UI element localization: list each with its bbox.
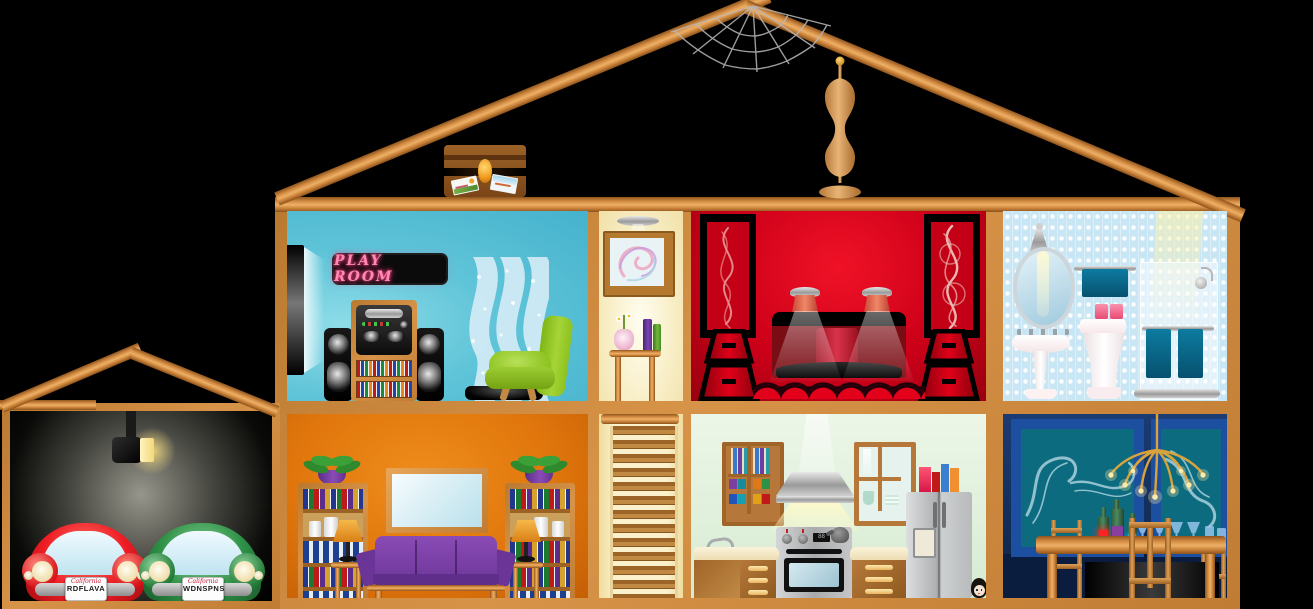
side-table-leg: [649, 357, 655, 401]
fridge-handle-left: [933, 502, 937, 528]
counter-top: [694, 547, 779, 560]
cereal-box: [932, 472, 940, 492]
chest-postcard-left: [451, 175, 480, 195]
chest-lock: [478, 159, 492, 183]
daisy: [616, 316, 622, 322]
sink-counter: [694, 538, 776, 598]
tissue-box: [1095, 304, 1108, 319]
colored-box: [762, 479, 770, 489]
chair-rail: [1129, 578, 1171, 584]
stove-oven: 88: [776, 527, 852, 598]
kettle: [831, 527, 849, 543]
swirl-panel-left: [700, 214, 756, 338]
knob-tick: [802, 529, 804, 533]
wall-screen: [386, 468, 488, 533]
lamp-table-leg: [513, 568, 518, 598]
table-leg: [1205, 554, 1215, 598]
cereal-box: [919, 467, 931, 492]
drawer-stack: [740, 560, 776, 598]
cereal-box: [950, 468, 959, 492]
red-car: California RDFLAVA: [26, 507, 144, 601]
lamp-shade: [333, 520, 363, 542]
stair-landing: [601, 414, 679, 424]
bathroom: [1003, 211, 1227, 401]
abstract-picture: [603, 231, 675, 297]
drawer-handle: [865, 577, 893, 582]
chair-post: [1165, 518, 1171, 598]
couch-leg: [490, 591, 497, 598]
doll-eye: [981, 589, 983, 591]
drawer-stack: [852, 560, 906, 598]
lamp-shade: [511, 520, 541, 542]
bath-towel-right: [1178, 329, 1203, 378]
drawer-counter: [852, 538, 906, 598]
colored-box: [753, 479, 761, 489]
car-foglight-right: [254, 571, 263, 580]
drinking-glass: [863, 491, 874, 505]
shower-base-bar: [1134, 389, 1220, 398]
window-mullion-h: [859, 477, 901, 481]
play-room: PLAY ROOM: [287, 211, 588, 401]
toilet-body: [1083, 333, 1125, 389]
refrigerator: [906, 492, 972, 598]
stacked-plates: [885, 495, 899, 505]
dining-chair-center: [1129, 518, 1171, 598]
doll-eye: [976, 589, 978, 591]
couch-leg: [375, 591, 382, 598]
white-jar: [552, 521, 564, 537]
license-plate: California WDNSPNS: [182, 577, 224, 601]
range-hood: [776, 472, 854, 496]
colored-box: [753, 494, 761, 504]
dress-form-mannequin: [800, 53, 880, 199]
lamp-table-leg: [335, 568, 340, 598]
stair-rungs: [610, 426, 678, 598]
swirl-panel-right: [924, 214, 980, 338]
armchair-front: [485, 367, 555, 389]
fridge-door-seam: [938, 492, 940, 598]
picture-swirl-art: [610, 238, 664, 286]
purple-couch: [363, 536, 509, 598]
white-jar: [309, 521, 321, 537]
upstairs-hallway: [599, 211, 683, 401]
license-plate: California RDFLAVA: [65, 577, 107, 601]
book-row: [510, 489, 570, 513]
postcard-sun: [469, 178, 475, 184]
stereo-dial: [400, 321, 408, 329]
drawer-handle: [865, 565, 893, 570]
range-hood-lip: [776, 496, 854, 503]
drawer-handle: [748, 566, 768, 571]
green-car: California WDNSPNS: [143, 507, 261, 601]
staircase: [599, 414, 683, 598]
potted-plant-right: [510, 456, 568, 484]
drawer-handle: [748, 590, 768, 595]
garage-interior: California RDFLAVA California WDNSPNS: [10, 411, 272, 601]
drawer-handle: [865, 589, 893, 594]
hand-towel: [1082, 269, 1128, 297]
couch-back: [375, 536, 497, 576]
couch-seam: [455, 540, 457, 574]
speaker-tower-left: [324, 328, 353, 401]
stereo-receiver: [356, 305, 412, 355]
living-room: [287, 414, 588, 598]
plate-number-text: RDFLAVA: [66, 585, 106, 593]
sconce-tip: [1036, 223, 1043, 230]
play-room-neon-sign: PLAY ROOM: [334, 255, 446, 283]
colored-box: [762, 494, 770, 504]
table-leg: [1047, 554, 1057, 598]
side-table-top: [609, 350, 661, 357]
stereo-knob-left: [363, 331, 381, 342]
standing-book-green: [653, 324, 661, 352]
neon-sign-text: PLAY ROOM: [334, 253, 446, 285]
treasure-chest: [444, 145, 526, 197]
speaker-cone: [419, 334, 440, 355]
tissue-box: [1110, 304, 1123, 319]
dollhouse-scene: PLAY ROOM: [0, 0, 1313, 609]
wall-cabinet: [722, 442, 784, 526]
bath-towel-left: [1146, 329, 1171, 378]
media-shelf-top: [356, 360, 412, 377]
couch-seam: [415, 540, 417, 574]
toilet-base: [1087, 387, 1121, 399]
potted-plant-left: [303, 456, 361, 484]
colored-box: [738, 479, 746, 489]
standing-book-purple: [643, 319, 652, 352]
speaker-cone: [327, 362, 350, 392]
attic-floor-beam: [275, 197, 1240, 212]
garage-light-head: [112, 437, 142, 463]
car-foglight-left: [24, 571, 33, 580]
stereo-knob-right: [387, 331, 405, 342]
lamp-table-leg: [534, 568, 539, 598]
colored-box: [729, 494, 737, 504]
chest-postcard-right: [490, 174, 518, 194]
plate-number-text: WDNSPNS: [183, 585, 223, 593]
kitchen: 88: [691, 414, 986, 598]
couch-seat: [373, 574, 499, 585]
cereal-box: [941, 464, 949, 492]
cabinet-door: [694, 560, 740, 598]
pink-vase: [614, 329, 634, 351]
couch-rail: [367, 585, 505, 591]
oven-door: [784, 558, 844, 592]
flat-panel-tv: [287, 245, 304, 375]
tv-glare: [304, 247, 324, 373]
colored-box: [729, 479, 737, 489]
stereo-cabinet: [351, 300, 417, 401]
screen-glass: [392, 474, 482, 527]
stove-knob: [798, 534, 808, 544]
daisy: [626, 313, 632, 319]
colored-box: [738, 494, 746, 504]
dining-room: [1003, 414, 1227, 598]
side-table-leg: [615, 357, 621, 401]
chair-rail: [1051, 528, 1082, 533]
counter-top: [850, 547, 908, 560]
pedestal-sink-bowl: [1012, 335, 1070, 353]
oven-glass: [789, 563, 839, 587]
red-media-room: [691, 211, 986, 401]
stove-knob: [782, 534, 792, 544]
car-headlight-right: [234, 561, 255, 582]
chair-rail: [1129, 522, 1171, 528]
cabinet-divider: [747, 446, 751, 514]
toilet-tank: [1080, 319, 1126, 334]
mirror-light-streak: [1037, 251, 1049, 317]
oven-handle: [786, 549, 842, 554]
car-headlight-left: [32, 561, 53, 582]
media-shelf-bottom: [356, 381, 412, 398]
garage-light-lens: [140, 438, 154, 462]
folding-fans: [753, 379, 925, 399]
peeking-doll: [971, 578, 986, 598]
book-row: [303, 489, 363, 513]
car-headlight-left: [149, 561, 170, 582]
speaker-cone: [418, 362, 441, 392]
drawer-stand-right: [915, 329, 983, 401]
pedestal-sink-column: [1031, 351, 1049, 393]
oval-mirror: [1013, 247, 1075, 329]
car-headlight-right: [117, 561, 138, 582]
speaker-tower-right: [415, 328, 444, 401]
stereo-display: [365, 309, 403, 318]
stereo-leds: [362, 322, 392, 326]
fridge-handle-right: [942, 502, 946, 528]
car-foglight-left: [141, 571, 150, 580]
chair-post: [1129, 518, 1135, 598]
ice-dispenser: [913, 528, 936, 558]
pedestal-sink-base: [1025, 389, 1057, 399]
glass-streak: [863, 449, 871, 475]
drawer-handle: [748, 578, 768, 583]
flower-stems: [623, 315, 625, 329]
knob-tick: [786, 529, 788, 533]
speaker-cone: [328, 334, 349, 355]
shower-arm: [1201, 267, 1213, 281]
